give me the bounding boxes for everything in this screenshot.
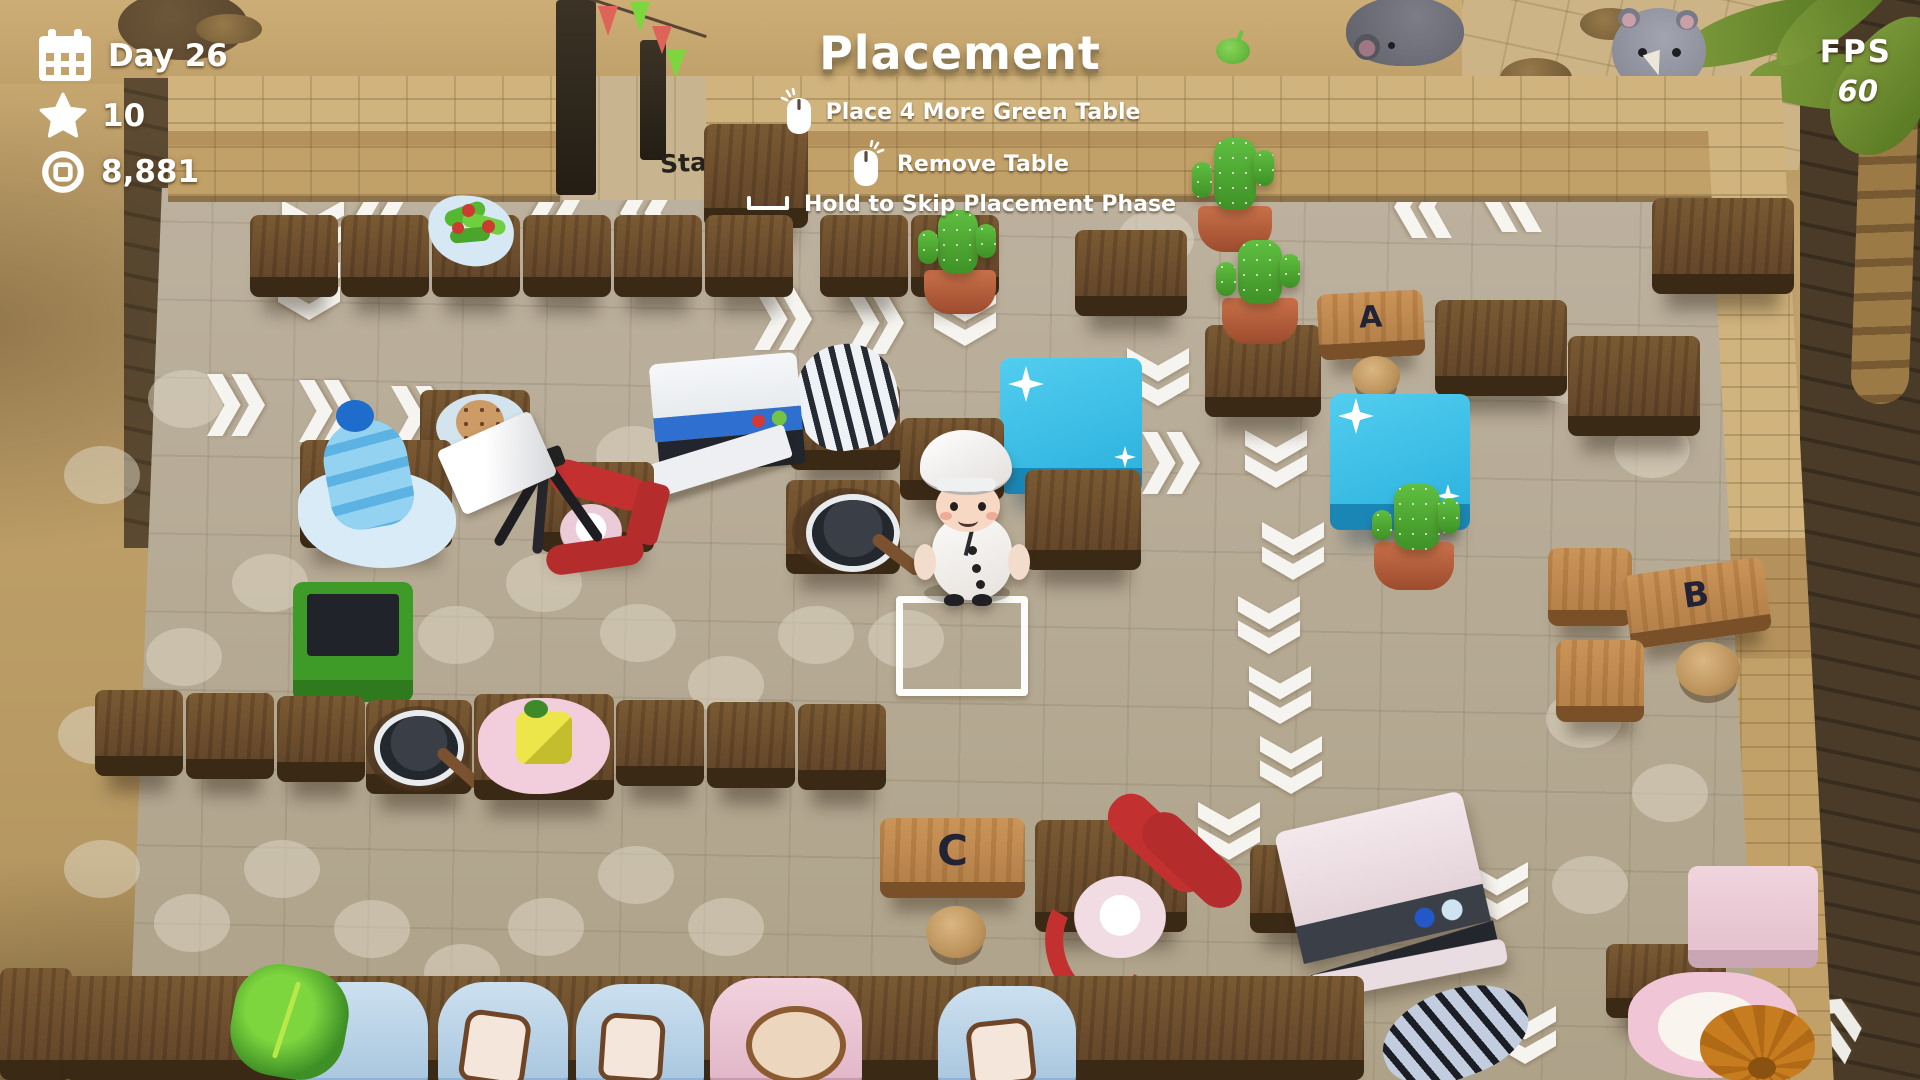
- counter[interactable]: [616, 700, 704, 786]
- pumpkin[interactable]: [1700, 1005, 1815, 1080]
- stars-row: 10: [36, 92, 228, 140]
- cactus-arm: [1192, 162, 1212, 198]
- floor-dot: [688, 898, 764, 956]
- counter[interactable]: [707, 702, 795, 788]
- cactus-arm: [1216, 262, 1236, 296]
- placement-target-square[interactable]: [896, 596, 1028, 696]
- bottle-cap: [336, 400, 374, 432]
- cactus: [938, 210, 978, 274]
- lemon-leaf: [524, 700, 548, 718]
- floor-dot: [1552, 856, 1628, 914]
- chef-button: [968, 546, 977, 555]
- floor-dot: [600, 604, 676, 662]
- trash-opening: [307, 594, 399, 656]
- stool[interactable]: [1352, 356, 1400, 396]
- stool[interactable]: [926, 906, 986, 958]
- pumpkin-core: [1748, 1057, 1776, 1079]
- light-counter[interactable]: [1548, 548, 1632, 626]
- cactus-pot: [924, 270, 996, 314]
- arrow-down-icon: [1238, 596, 1300, 654]
- lemon-cube: [516, 712, 572, 764]
- stool[interactable]: [1676, 642, 1740, 696]
- counter[interactable]: [95, 690, 183, 776]
- counter[interactable]: [1075, 230, 1187, 316]
- instruction-remove-label: Remove Table: [897, 152, 1069, 177]
- counter[interactable]: [705, 215, 793, 297]
- arrow-right-icon: [754, 288, 812, 350]
- instruction-remove: Remove Table: [851, 140, 1069, 188]
- bread-loaf: [746, 1006, 846, 1080]
- counter[interactable]: [820, 215, 908, 297]
- salad-tomato: [452, 222, 464, 234]
- cactus-arm: [976, 224, 996, 258]
- instruction-skip-label: Hold to Skip Placement Phase: [804, 192, 1176, 217]
- counter[interactable]: [614, 215, 702, 297]
- floor-dot: [598, 846, 674, 904]
- game-viewport: Start A: [0, 0, 1920, 1080]
- arrow-down-icon: [1245, 430, 1307, 488]
- floor-dot: [334, 900, 410, 958]
- frying-pan[interactable]: [812, 500, 894, 566]
- floor-dot: [244, 840, 320, 898]
- counter[interactable]: [798, 704, 886, 790]
- coin-counter: 8,881: [101, 154, 199, 190]
- instruction-panel: Place 4 More Green Table Remove Table Ho…: [744, 88, 1176, 217]
- table-a[interactable]: A: [1316, 289, 1425, 360]
- counter[interactable]: [186, 693, 274, 779]
- chef-character: [906, 430, 1030, 610]
- chef-foot: [972, 594, 992, 606]
- floor-dot: [508, 898, 584, 956]
- table-a-label: A: [1358, 299, 1383, 335]
- floor-dot: [64, 446, 140, 504]
- counter[interactable]: [1652, 198, 1794, 294]
- counter[interactable]: [523, 215, 611, 297]
- floor-dot: [418, 606, 494, 664]
- light-counter[interactable]: [1556, 640, 1644, 722]
- instruction-place-label: Place 4 More Green Table: [826, 100, 1141, 125]
- rhino-ear: [1618, 8, 1640, 28]
- chef-cheek: [986, 512, 998, 520]
- chef-arm: [1008, 544, 1030, 580]
- bread-slice: [598, 1012, 667, 1080]
- cactus-arm: [1438, 498, 1460, 534]
- chef-cheek: [940, 512, 952, 520]
- bread-slice: [965, 1017, 1038, 1080]
- counter[interactable]: [1435, 300, 1567, 396]
- star-counter: 10: [102, 98, 145, 134]
- chef-eye: [978, 502, 986, 511]
- floor-dot: [154, 894, 230, 952]
- counter[interactable]: [341, 215, 429, 297]
- counter[interactable]: [250, 215, 338, 297]
- instruction-skip: Hold to Skip Placement Phase: [744, 192, 1176, 217]
- fps-label: FPS: [1820, 34, 1892, 70]
- cactus-pot: [1222, 298, 1298, 344]
- floor-dot: [778, 606, 854, 664]
- chef-eye: [950, 502, 958, 511]
- chef-button: [972, 564, 981, 573]
- floor-dot: [1632, 764, 1708, 822]
- chef-mustache: [958, 514, 978, 527]
- stand-mixer-large[interactable]: [1040, 818, 1210, 978]
- trash-bin[interactable]: [293, 582, 413, 702]
- chef-hat: [920, 430, 1012, 495]
- chef-hat-band: [936, 478, 996, 491]
- arrow-right-icon: [207, 374, 265, 436]
- counter[interactable]: [1025, 470, 1141, 570]
- spacebar-icon: [744, 194, 792, 216]
- chef-button: [976, 580, 985, 589]
- stand-mixer[interactable]: [540, 452, 680, 580]
- floor-dot: [146, 628, 222, 686]
- phase-title: Placement: [0, 26, 1920, 80]
- counter[interactable]: [277, 696, 365, 782]
- table-c-label: C: [937, 826, 968, 875]
- counter[interactable]: [0, 968, 72, 1080]
- arrow-right-icon: [1142, 432, 1200, 494]
- cactus-arm: [1372, 510, 1392, 540]
- salad-tomato: [482, 220, 495, 233]
- chef-arm: [914, 544, 936, 580]
- cactus: [1238, 240, 1282, 304]
- coin-icon: [39, 148, 87, 196]
- cactus-arm: [1280, 254, 1300, 288]
- coins-row: 8,881: [36, 148, 228, 196]
- mouse-right-click-icon: [851, 140, 885, 188]
- cactus: [1394, 484, 1440, 550]
- cactus: [1214, 138, 1256, 210]
- fps-value: 60: [1820, 74, 1878, 108]
- cactus-arm: [1254, 150, 1274, 186]
- pink-table[interactable]: [1688, 866, 1818, 968]
- bread-slice: [457, 1008, 532, 1080]
- chef-foot: [944, 594, 964, 606]
- arrow-down-icon: [1249, 666, 1311, 724]
- table-b-label: B: [1680, 573, 1711, 616]
- instruction-place: Place 4 More Green Table: [780, 88, 1141, 136]
- cactus-arm: [918, 230, 938, 264]
- mouse-left-click-icon: [780, 88, 814, 136]
- counter[interactable]: [1568, 336, 1700, 436]
- table-c[interactable]: C: [880, 818, 1025, 898]
- fps-display: FPS 60: [1820, 34, 1892, 108]
- arrow-down-icon: [1262, 522, 1324, 580]
- floor-dot: [64, 840, 140, 898]
- arrow-down-icon: [1260, 736, 1322, 794]
- star-icon: [38, 92, 88, 140]
- salad-tomato: [462, 204, 475, 217]
